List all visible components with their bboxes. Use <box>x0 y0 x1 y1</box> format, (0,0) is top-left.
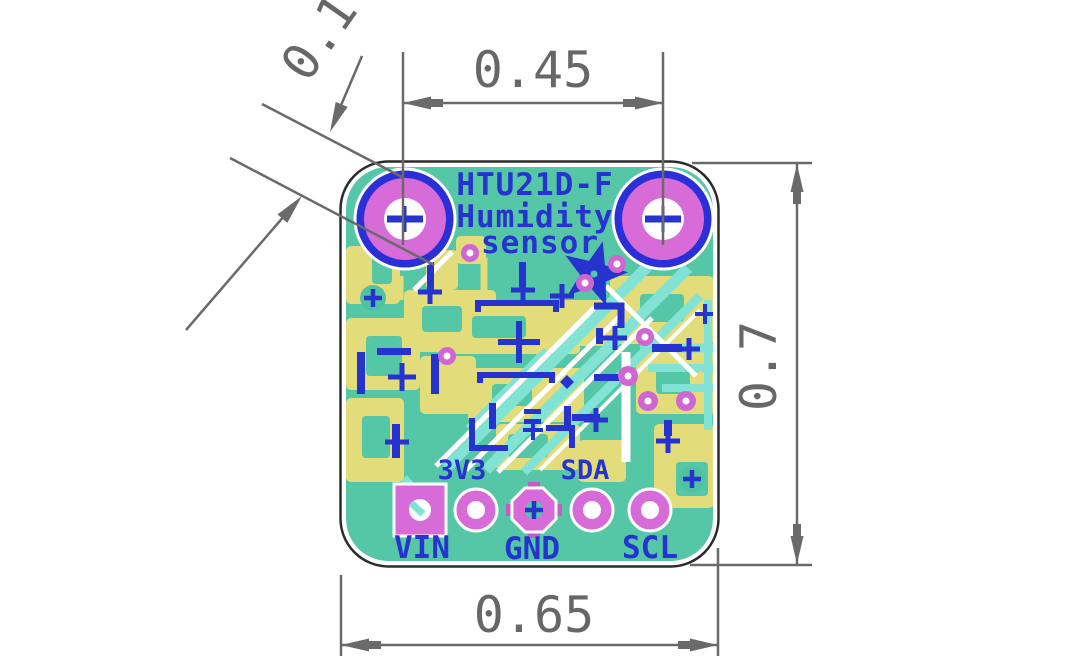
pad-3v3 <box>455 489 497 531</box>
mounting-hole-left <box>355 169 455 269</box>
pin-label-scl: SCL <box>622 530 678 566</box>
dimension-value-board-height: 0.7 <box>730 321 788 411</box>
pad-scl <box>629 489 671 531</box>
drawing-canvas: HTU21D-F Humidity sensor 3V3 SDA VIN GND… <box>0 0 1080 659</box>
pin-label-vin: VIN <box>394 530 450 566</box>
silkscreen-title-line3: sensor <box>481 225 599 261</box>
pin-label-3v3: 3V3 <box>438 455 487 486</box>
pad-vin <box>394 484 446 536</box>
pad-sda <box>571 489 613 531</box>
dimension-value-board-width: 0.65 <box>474 586 594 644</box>
dimension-value-hole-pitch: 0.45 <box>473 41 593 99</box>
pcb-dimension-drawing: HTU21D-F Humidity sensor 3V3 SDA VIN GND… <box>0 0 1080 659</box>
pin-label-sda: SDA <box>561 455 610 486</box>
silkscreen-title-line1: HTU21D-F <box>456 167 613 203</box>
